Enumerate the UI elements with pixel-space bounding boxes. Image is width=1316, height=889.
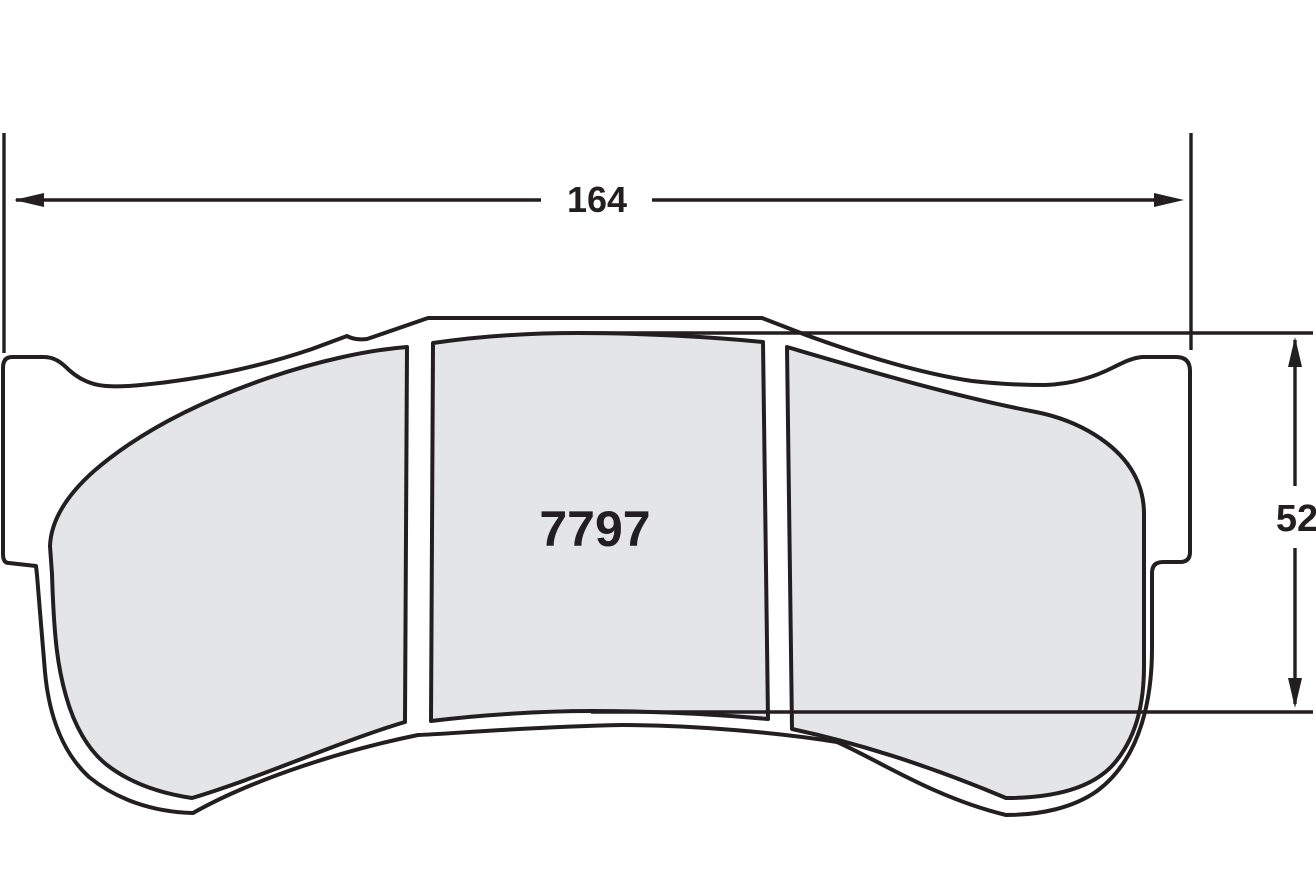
height-dimension-label: 52: [1276, 498, 1316, 540]
part-number-label: 7797: [539, 501, 650, 557]
width-arrowhead-left-icon: [14, 193, 44, 207]
brake-pad-technical-drawing: 164 52 7797: [0, 0, 1316, 889]
height-arrowhead-down-icon: [1288, 678, 1302, 708]
width-arrowhead-right-icon: [1154, 193, 1184, 207]
width-dimension-label: 164: [567, 179, 627, 220]
height-arrowhead-up-icon: [1288, 337, 1302, 367]
drawing-canvas: 164 52 7797: [0, 0, 1316, 889]
